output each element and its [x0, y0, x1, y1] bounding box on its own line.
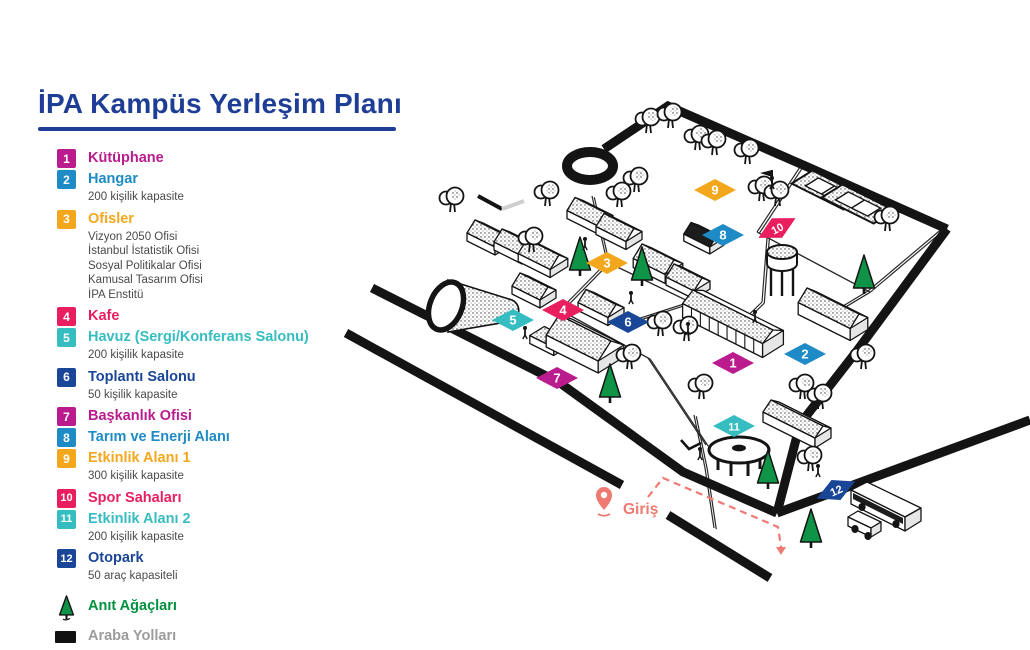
legend-item-4: 4Kafe — [57, 307, 367, 326]
legend-item-label: Araba Yolları — [88, 627, 176, 646]
round-tree-icon — [689, 375, 713, 400]
water-tower-layer — [767, 245, 797, 296]
legend-item-9: 9Etkinlik Alanı 1300 kişilik kapasite — [57, 449, 367, 487]
legend-number-badge: 3 — [57, 210, 76, 229]
legend-item-11: 11Etkinlik Alanı 2200 kişilik kapasite — [57, 510, 367, 548]
tree-icon — [57, 593, 76, 623]
monument-tree-icon — [801, 509, 822, 548]
legend-item-6: 6Toplantı Salonu50 kişilik kapasite — [57, 368, 367, 406]
legend-item-subtext: 200 kişilik kapasite — [88, 190, 184, 205]
map-marker-1: 1 — [712, 352, 754, 374]
vehicles-layer — [848, 482, 921, 540]
round-tree-icon — [535, 182, 559, 207]
round-tree-icon — [440, 188, 464, 213]
map-marker-2: 2 — [784, 343, 826, 365]
legend-item-12: 12Otopark50 araç kapasiteli — [57, 549, 367, 587]
legend-item-label: Kütüphane — [88, 149, 164, 167]
round-table-layer — [681, 437, 769, 476]
monument-tree-icon — [570, 237, 591, 276]
legend-item-subtext: 50 araç kapasiteli — [88, 569, 178, 584]
page-title: İPA Kampüs Yerleşim Planı — [38, 88, 418, 120]
legend-subline: 300 kişilik kapasite — [88, 469, 191, 484]
header: İPA Kampüs Yerleşim Planı — [38, 88, 418, 131]
legend-subline: 200 kişilik kapasite — [88, 190, 184, 205]
monument-tree-icon — [854, 255, 875, 294]
legend-item-subtext: 200 kişilik kapasite — [88, 530, 191, 545]
legend-item-label: Havuz (Sergi/Konferans Salonu) — [88, 328, 309, 346]
entrance-label: Giriş — [623, 501, 658, 518]
legend-number-badge: 4 — [57, 307, 76, 326]
legend-subline: İstanbul İstatistik Ofisi — [88, 244, 203, 259]
legend: 1Kütüphane2Hangar200 kişilik kapasite3Of… — [57, 149, 367, 648]
legend-item-subtext: 50 kişilik kapasite — [88, 388, 196, 403]
legend-subline: 200 kişilik kapasite — [88, 530, 191, 545]
legend-subline: Sosyal Politikalar Ofisi — [88, 259, 203, 274]
marker-number: 4 — [559, 303, 567, 318]
road-icon — [57, 627, 76, 643]
legend-number-badge: 8 — [57, 428, 76, 447]
legend-item-8: 8Tarım ve Enerji Alanı — [57, 428, 367, 447]
legend-item-label: Otopark — [88, 549, 178, 567]
legend-item-2: 2Hangar200 kişilik kapasite — [57, 170, 367, 208]
marker-number: 1 — [729, 356, 736, 371]
map-marker-11: 11 — [713, 415, 755, 437]
legend-number-badge: 10 — [57, 489, 76, 508]
legend-item-label: Tarım ve Enerji Alanı — [88, 428, 230, 446]
hangar-layer — [422, 277, 519, 335]
entrance-pin-icon — [596, 487, 612, 516]
legend-item-subtext: 200 kişilik kapasite — [88, 348, 309, 363]
round-tree-icon — [735, 140, 759, 165]
legend-item-label: Etkinlik Alanı 1 — [88, 449, 191, 467]
legend-item-label: Spor Sahaları — [88, 489, 181, 507]
marker-number: 8 — [719, 228, 726, 243]
car-road — [668, 515, 770, 578]
road-stub-gray — [502, 201, 524, 209]
legend-item-label: Etkinlik Alanı 2 — [88, 510, 191, 528]
table-center-hole — [732, 445, 746, 452]
legend-item-1: 1Kütüphane — [57, 149, 367, 168]
legend-item-5: 5Havuz (Sergi/Konferans Salonu)200 kişil… — [57, 328, 367, 366]
person-figure — [583, 237, 587, 250]
bench — [681, 440, 701, 449]
person-figure — [629, 291, 633, 304]
map-marker-9: 9 — [694, 179, 736, 201]
marker-number: 11 — [728, 422, 740, 434]
legend-subline: 50 araç kapasiteli — [88, 569, 178, 584]
legend-subline: 50 kişilik kapasite — [88, 388, 196, 403]
legend-item-subtext: 300 kişilik kapasite — [88, 469, 191, 484]
legend-item-subtext: Vizyon 2050 Ofisiİstanbul İstatistik Ofi… — [88, 230, 203, 303]
legend-number-badge: 5 — [57, 328, 76, 347]
marker-number: 9 — [711, 183, 718, 198]
legend-item-label: Anıt Ağaçları — [88, 593, 177, 619]
legend-item-7: 7Başkanlık Ofisi — [57, 407, 367, 426]
car-roads-layer — [346, 106, 1030, 578]
legend-number-badge: 12 — [57, 549, 76, 568]
walkway-path — [762, 238, 767, 302]
walkway-path — [694, 415, 714, 528]
building — [512, 273, 556, 308]
marker-number: 6 — [624, 315, 631, 330]
legend-subline: 200 kişilik kapasite — [88, 348, 309, 363]
legend-item-car-roads: Araba Yolları — [57, 627, 367, 646]
legend-subline: Vizyon 2050 Ofisi — [88, 230, 203, 245]
entrance-layer: Giriş — [596, 478, 786, 555]
tower-tank-top — [767, 245, 797, 259]
legend-item-10: 10Spor Sahaları — [57, 489, 367, 508]
legend-item-label: Başkanlık Ofisi — [88, 407, 192, 425]
legend-subline: Kamusal Tasarım Ofisi — [88, 273, 203, 288]
legend-number-badge: 9 — [57, 449, 76, 468]
marker-number: 2 — [801, 347, 808, 362]
campus-plan-page: 123456789101112Giriş İPA Kampüs Yerleşim… — [0, 0, 1030, 650]
culdesac-loop — [567, 152, 613, 180]
legend-subline: İPA Enstitü — [88, 288, 203, 303]
marker-number: 7 — [553, 371, 560, 386]
legend-item-label: Toplantı Salonu — [88, 368, 196, 386]
legend-number-badge: 11 — [57, 510, 76, 529]
legend-item-monument-trees: Anıt Ağaçları — [57, 593, 367, 623]
legend-item-3: 3OfislerVizyon 2050 Ofisiİstanbul İstati… — [57, 210, 367, 306]
entrance-arrowhead — [776, 547, 786, 555]
map-marker-10: 10 — [753, 208, 800, 247]
round-tree-icon — [607, 183, 631, 208]
marker-number: 3 — [603, 256, 610, 271]
legend-number-badge: 2 — [57, 170, 76, 189]
round-tree-icon — [674, 317, 698, 342]
legend-item-label: Hangar — [88, 170, 184, 188]
legend-item-label: Ofisler — [88, 210, 203, 228]
legend-number-badge: 6 — [57, 368, 76, 387]
person-figure — [523, 326, 527, 339]
map-marker-3: 3 — [586, 252, 628, 274]
marker-number: 5 — [509, 313, 516, 328]
person-figure — [816, 464, 820, 477]
road-stub — [478, 196, 502, 209]
legend-item-label: Kafe — [88, 307, 119, 325]
legend-number-badge: 1 — [57, 149, 76, 168]
legend-number-badge: 7 — [57, 407, 76, 426]
building — [798, 288, 868, 341]
title-underline — [38, 127, 396, 131]
